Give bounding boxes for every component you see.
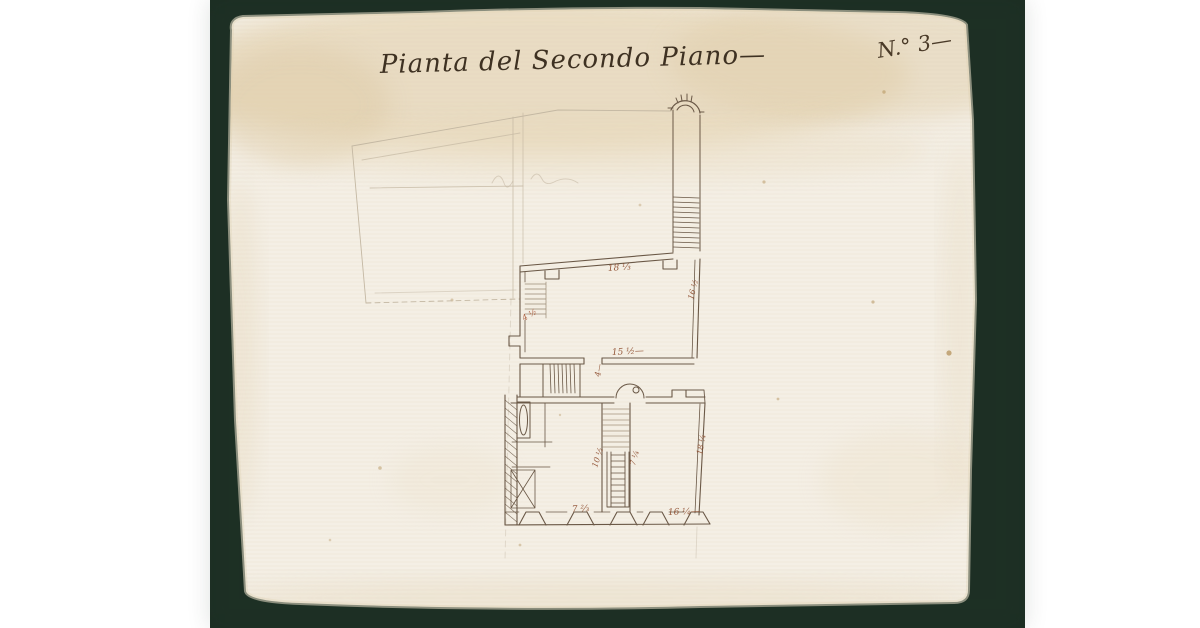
measurement-bottom-left: 7 ⅔	[572, 504, 590, 515]
manuscript-photo-stage: Pianta del Secondo Piano— N.° 3— 18 ⅓ 15…	[0, 0, 1200, 628]
measurement-bottom-right: 16 ¼—	[668, 506, 700, 518]
measurement-top-wall: 18 ⅓	[608, 262, 632, 274]
manuscript-photo: Pianta del Secondo Piano— N.° 3— 18 ⅓ 15…	[0, 0, 1200, 628]
measurement-mid-wall: 15 ½—	[612, 345, 645, 358]
